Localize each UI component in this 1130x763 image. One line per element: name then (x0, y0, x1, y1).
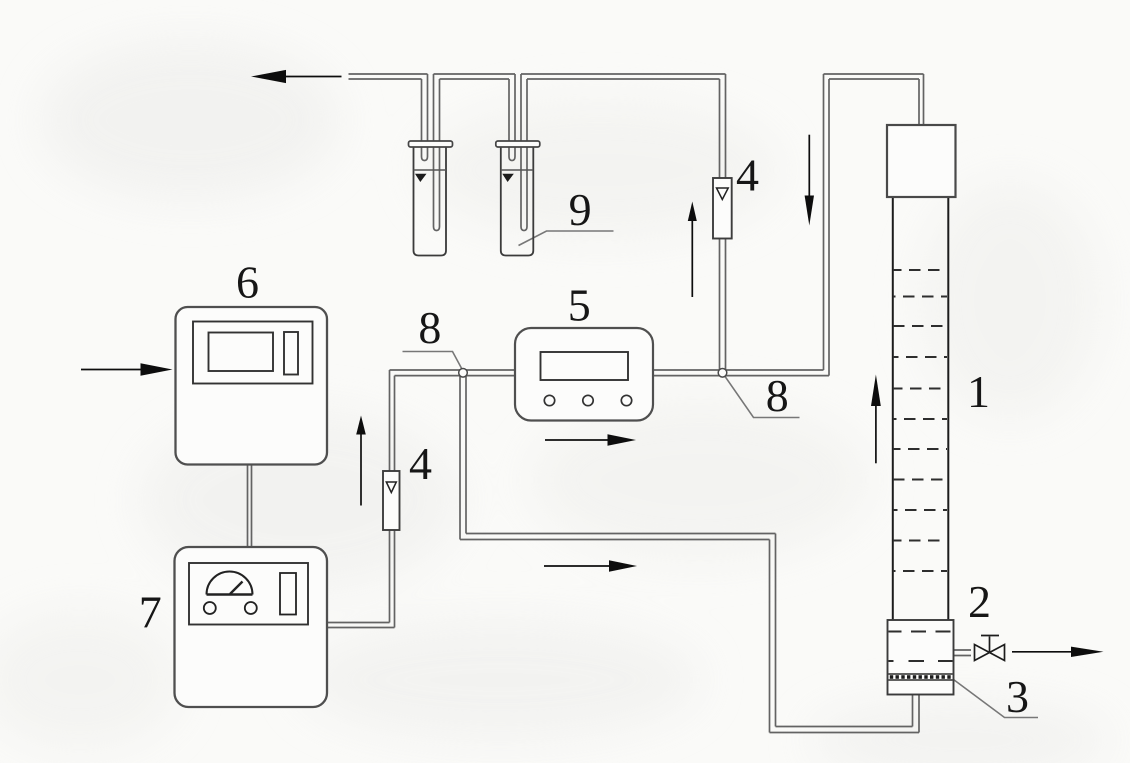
svg-text:4: 4 (409, 438, 432, 489)
svg-text:8: 8 (766, 370, 789, 421)
svg-text:8: 8 (418, 302, 441, 353)
svg-text:1: 1 (967, 366, 990, 417)
svg-text:9: 9 (569, 184, 592, 235)
svg-text:5: 5 (568, 280, 591, 331)
svg-text:6: 6 (236, 257, 259, 308)
svg-text:7: 7 (139, 587, 162, 638)
svg-text:3: 3 (1006, 671, 1029, 722)
svg-text:4: 4 (736, 150, 759, 201)
svg-text:2: 2 (968, 576, 991, 627)
